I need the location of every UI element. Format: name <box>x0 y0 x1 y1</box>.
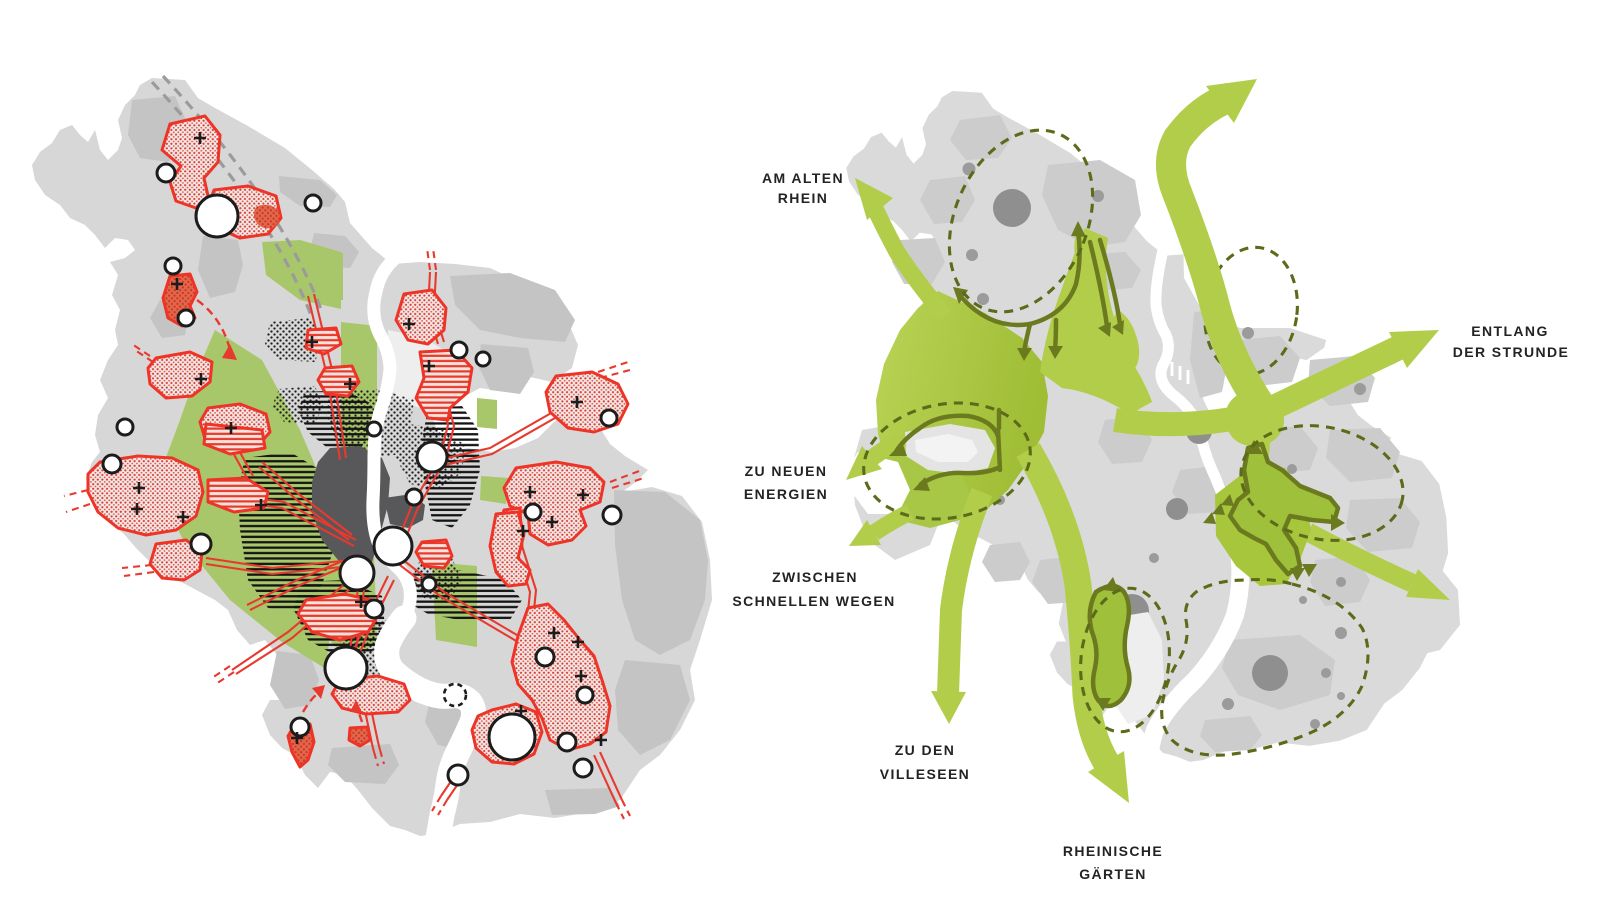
svg-text:ENTLANG: ENTLANG <box>1471 323 1548 339</box>
svg-text:ZU NEUEN: ZU NEUEN <box>745 463 828 479</box>
svg-text:ZU DEN: ZU DEN <box>895 742 956 758</box>
svg-text:VILLESEEN: VILLESEEN <box>880 766 970 782</box>
svg-text:DER STRUNDE: DER STRUNDE <box>1453 344 1570 360</box>
svg-text:ZWISCHEN: ZWISCHEN <box>772 569 858 585</box>
svg-text:GÄRTEN: GÄRTEN <box>1079 866 1147 882</box>
svg-text:ENERGIEN: ENERGIEN <box>744 486 828 502</box>
svg-text:RHEIN: RHEIN <box>778 190 829 206</box>
svg-text:RHEINISCHE: RHEINISCHE <box>1063 843 1163 859</box>
svg-text:AM ALTEN: AM ALTEN <box>762 170 844 186</box>
svg-text:SCHNELLEN WEGEN: SCHNELLEN WEGEN <box>732 593 895 609</box>
